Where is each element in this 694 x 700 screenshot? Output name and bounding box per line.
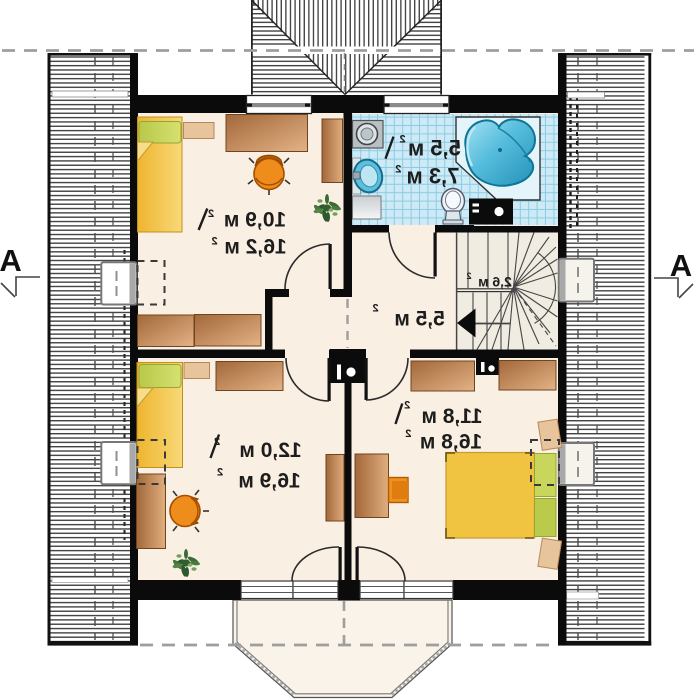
svg-text:2: 2 [400, 134, 406, 146]
svg-text:16,9 м: 16,9 м [238, 470, 300, 493]
svg-text:12,0 м: 12,0 м [239, 439, 301, 462]
svg-text:5,5 м: 5,5 м [408, 136, 461, 161]
svg-text:2: 2 [395, 164, 401, 176]
svg-text:2: 2 [208, 208, 214, 220]
svg-text:2: 2 [372, 303, 378, 315]
svg-text:5,5 м: 5,5 м [394, 308, 445, 331]
svg-text:2: 2 [211, 236, 217, 248]
svg-text:2: 2 [217, 467, 223, 479]
svg-text:16,2 м: 16,2 м [224, 236, 286, 259]
svg-text:2: 2 [404, 400, 410, 412]
svg-text:2,6 м: 2,6 м [478, 274, 512, 290]
svg-text:16,8 м: 16,8 м [420, 431, 482, 454]
svg-text:2: 2 [405, 428, 411, 440]
svg-text:10,9 м: 10,9 м [224, 209, 286, 232]
svg-text:A: A [0, 243, 22, 278]
svg-text:2: 2 [466, 271, 471, 281]
svg-text:11,8 м: 11,8 м [421, 405, 482, 428]
svg-text:7,3 м: 7,3 м [407, 164, 460, 189]
